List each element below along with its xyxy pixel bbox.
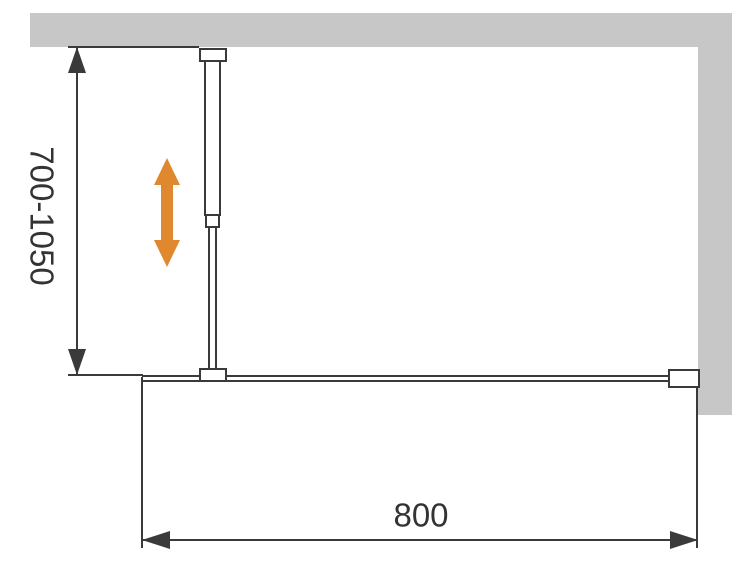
support-bar-outer-tube [204, 60, 221, 216]
arrowhead-right-icon [670, 531, 698, 549]
support-bar-collar [205, 214, 220, 228]
vertical-dimension-label: 700-1050 [26, 146, 59, 285]
arrowhead-down-icon [68, 349, 86, 375]
extension-line-top [68, 46, 199, 48]
adjustability-arrow-head-down [154, 240, 180, 267]
wall-right [698, 47, 732, 415]
glass-wall-mount-bracket [668, 369, 700, 388]
extension-line-left [141, 377, 143, 548]
support-bar-wall-bracket [199, 48, 227, 62]
adjustability-arrow-icon [154, 158, 180, 185]
adjustability-arrow-shaft [161, 182, 173, 244]
horizontal-dimension-label: 800 [393, 499, 448, 532]
support-bar-glass-clamp [199, 368, 227, 382]
wall-top [30, 13, 732, 47]
support-bar-inner-rod [208, 226, 217, 372]
arrowhead-left-icon [142, 531, 170, 549]
extension-line-right [696, 388, 698, 548]
shower-screen-technical-diagram: 700-1050 800 [0, 0, 750, 562]
dimension-line-horizontal [142, 539, 698, 541]
arrowhead-up-icon [68, 47, 86, 73]
dimension-line-vertical [76, 47, 78, 375]
